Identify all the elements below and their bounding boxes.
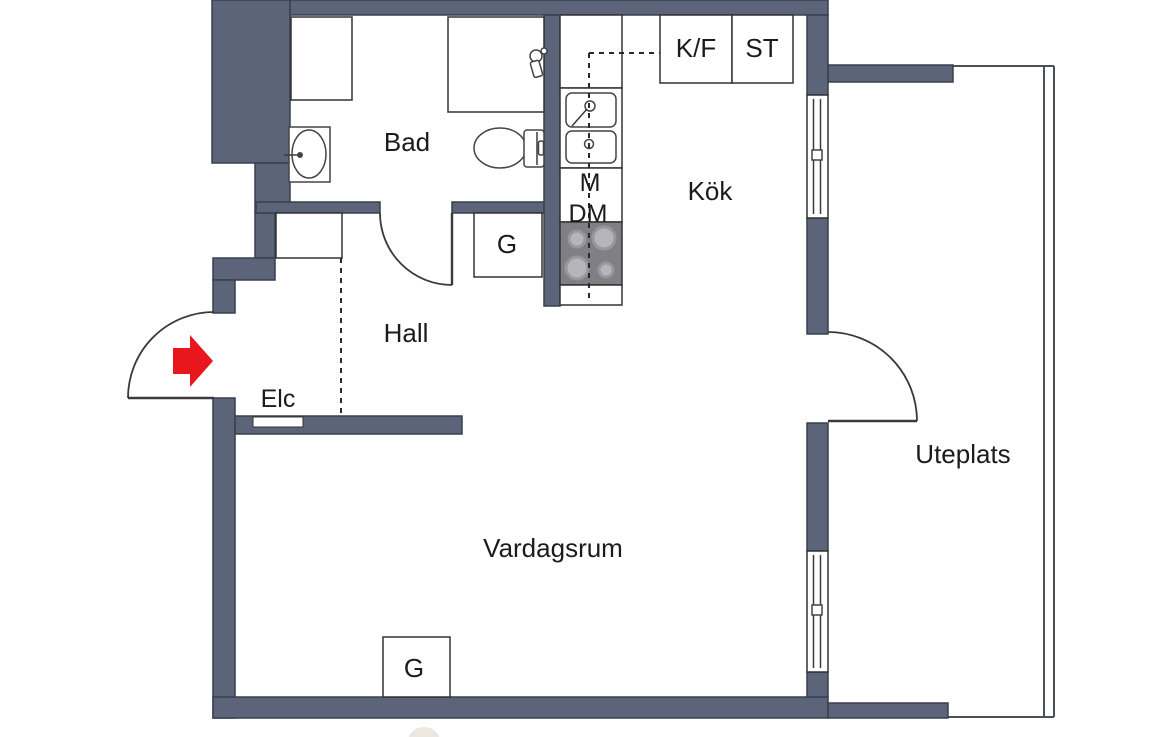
sink-faucet-knob <box>297 152 303 158</box>
wall-top <box>290 0 828 15</box>
label-elc: Elc <box>261 385 296 413</box>
kitchen-counter-top-section <box>560 15 622 88</box>
label-g-vardagsrum: G <box>404 653 424 683</box>
label-bad: Bad <box>384 127 430 157</box>
wall-bottom-extension <box>828 703 948 718</box>
livingroom-window <box>807 551 828 672</box>
livingroom-window-latch <box>812 605 822 615</box>
stove <box>560 222 622 285</box>
shower-knob <box>541 48 547 54</box>
label-m: M <box>580 169 601 197</box>
label-hall: Hall <box>384 318 429 348</box>
wall-right-between-window-door <box>807 218 828 334</box>
burner-bottom-left <box>566 257 588 279</box>
wall-right-above-kitchen-window <box>807 15 828 95</box>
wall-left-below-entrance <box>213 398 235 718</box>
wall-left-jut <box>213 258 275 280</box>
wall-top-right-extension <box>828 65 953 82</box>
label-kf: K/F <box>676 33 716 63</box>
bathroom-sink <box>284 127 330 182</box>
kitchen-window-latch <box>812 150 822 160</box>
kitchen-cabinet-below-stove <box>560 285 622 305</box>
wall-right-below-patio-door <box>807 423 828 551</box>
burner-top-left <box>569 231 585 247</box>
wall-left-above-entrance <box>213 280 235 313</box>
burner-bottom-right <box>599 263 613 277</box>
sink-basin <box>292 130 326 178</box>
toilet <box>474 128 544 168</box>
kitchen-sink-unit <box>560 88 622 168</box>
kitchen-window <box>807 95 828 218</box>
label-kok: Kök <box>688 176 734 206</box>
floor-plan: Bad K/F ST M DM Kök G Hall Elc Vardagsru… <box>0 0 1170 737</box>
bathroom-cabinet-left <box>291 17 352 100</box>
wall-bathroom-bottom-left <box>256 202 380 213</box>
label-g-hall: G <box>497 229 517 259</box>
wall-bottom <box>213 697 828 718</box>
toilet-bowl <box>474 128 526 168</box>
burner-top-right <box>593 227 615 249</box>
elc-cabinet <box>253 417 303 427</box>
hall-closet <box>276 213 342 258</box>
wall-left-mid <box>255 213 275 258</box>
label-st: ST <box>745 33 778 63</box>
label-vardagsrum: Vardagsrum <box>483 533 623 563</box>
wall-bathroom-kitchen-divider <box>544 15 560 306</box>
bathroom-shower-area <box>448 17 544 112</box>
wall-right-bottom <box>807 672 828 697</box>
wall-top-left-block <box>212 0 290 163</box>
label-dm: DM <box>569 200 608 228</box>
label-uteplats: Uteplats <box>915 439 1010 469</box>
toilet-flush-button <box>539 141 544 155</box>
